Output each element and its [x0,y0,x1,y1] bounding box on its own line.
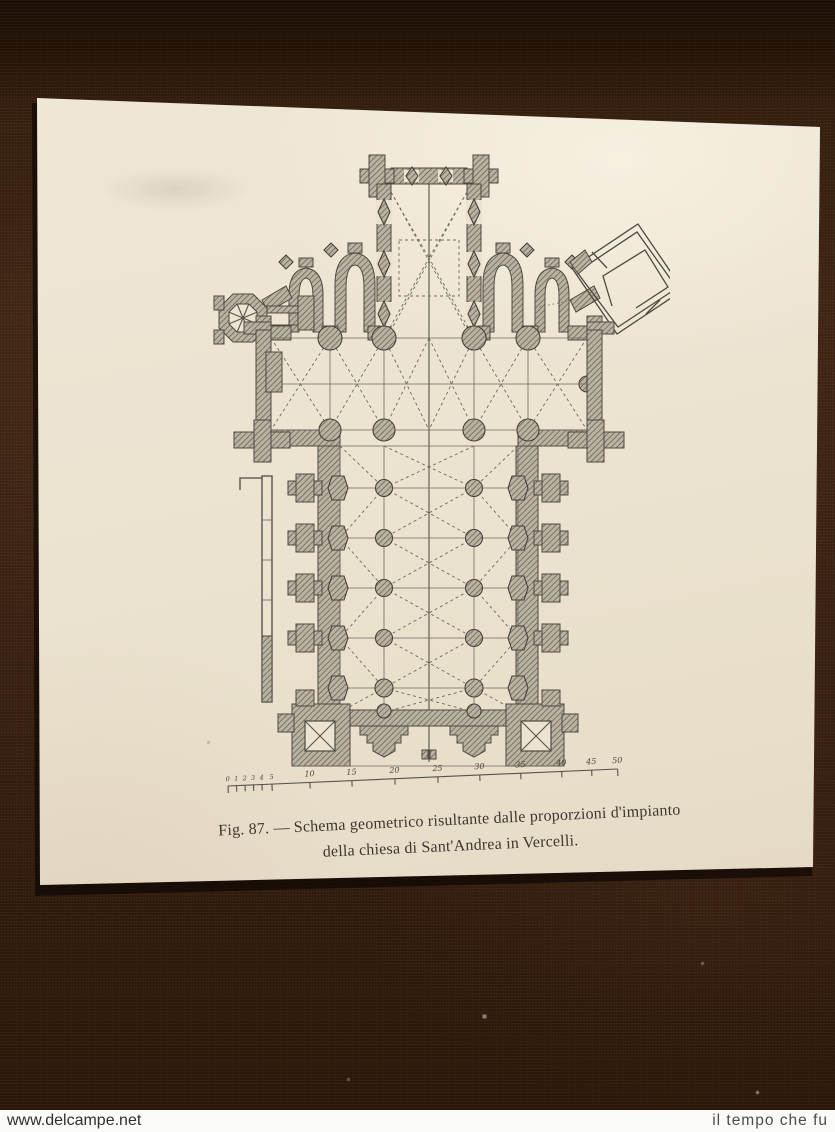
scale-minor-label: 5 [269,773,273,781]
watermark-delcampe: www.delcampe.net [7,1110,141,1132]
watermark-strip: www.delcampe.net il tempo che fu [0,1110,835,1132]
scale-ticks [228,769,618,793]
church-floor-plan: 0 1 2 3 4 5 10 15 20 25 30 35 40 45 50 [200,140,670,800]
chapels-left [262,243,375,332]
scale-major-label: 40 [555,758,567,767]
scale-minor-label: 4 [258,773,263,781]
scale-major-label: 50 [612,756,623,765]
chapter-house-annex [570,224,670,334]
scale-minor-label: 0 [225,775,229,783]
scale-major-label: 10 [304,769,315,778]
nave [288,446,568,712]
scale-bar: 0 1 2 3 4 5 10 15 20 25 30 35 40 45 50 [225,756,623,793]
figure-caption: Fig. 87. — Schema geometrico risultante … [167,795,733,873]
scale-major-label: 15 [346,767,357,776]
fabric-lint-specks [0,0,1,1]
scale-minor-label: 1 [234,775,238,783]
scale-major-label: 30 [474,762,485,771]
scale-major-label: 35 [515,760,526,769]
scale-major-label: 25 [431,764,443,773]
scale-minor-label: 3 [251,774,255,782]
watermark-il-tempo-che-fu: il tempo che fu [712,1110,828,1132]
scale-minor-label: 2 [241,774,246,782]
print-paper: 0 1 2 3 4 5 10 15 20 25 30 35 40 45 50 F… [0,0,835,1132]
scale-major-label: 45 [585,757,597,766]
photograph-of-print: 0 1 2 3 4 5 10 15 20 25 30 35 40 45 50 F… [0,0,835,1132]
scale-major-label: 20 [388,766,400,775]
